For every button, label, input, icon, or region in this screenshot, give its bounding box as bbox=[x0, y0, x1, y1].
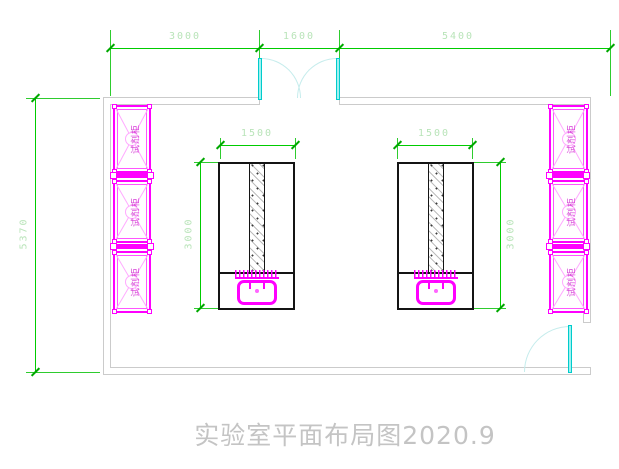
extension-line bbox=[110, 30, 111, 96]
dimension-text-5400: 5400 bbox=[428, 31, 488, 42]
reagent-cabinet: 试剂柜 bbox=[549, 251, 588, 313]
dimension-text-1500: 1500 bbox=[227, 128, 287, 139]
corner-mark bbox=[147, 250, 152, 255]
sink-tap-mark bbox=[428, 283, 430, 289]
cabinet-label: 试剂柜 bbox=[565, 124, 578, 154]
sink-tap-mark bbox=[263, 283, 265, 289]
cabinet-label: 试剂柜 bbox=[128, 124, 141, 154]
cabinet-connector-end bbox=[583, 243, 590, 250]
cabinet-label: 试剂柜 bbox=[565, 267, 578, 297]
reagent-cabinet: 试剂柜 bbox=[549, 105, 588, 173]
cabinet-label: 试剂柜 bbox=[565, 196, 578, 226]
corner-mark bbox=[584, 250, 589, 255]
corner-mark bbox=[147, 179, 152, 184]
corner-mark bbox=[584, 309, 589, 314]
cabinet-label: 试剂柜 bbox=[128, 196, 141, 226]
corner-mark bbox=[548, 250, 553, 255]
extension-line bbox=[339, 30, 340, 58]
door-jamb-right-lower bbox=[583, 367, 591, 368]
wall-top-outer-right bbox=[339, 97, 590, 98]
door-leaf-single bbox=[568, 325, 572, 373]
cabinet-connector-end bbox=[147, 172, 154, 179]
extension-line bbox=[295, 138, 296, 159]
door-arc-left bbox=[261, 58, 301, 98]
extension-line bbox=[26, 372, 100, 373]
reagent-cabinet: 试剂柜 bbox=[113, 251, 151, 313]
wall-right-outer-top bbox=[590, 97, 591, 322]
cabinet-connector-end bbox=[546, 172, 553, 179]
dimension-text-1500: 1500 bbox=[404, 128, 464, 139]
corner-mark bbox=[584, 104, 589, 109]
wall-bottom-inner bbox=[110, 367, 584, 368]
door-arc-single bbox=[524, 326, 570, 372]
corner-mark bbox=[112, 309, 117, 314]
door-leaf-left bbox=[258, 58, 262, 100]
dimension-text-5370: 5370 bbox=[19, 212, 30, 256]
extension-line bbox=[220, 138, 221, 159]
door-leaf-right bbox=[336, 58, 340, 100]
cabinet-label: 试剂柜 bbox=[128, 267, 141, 297]
corner-mark bbox=[584, 179, 589, 184]
wall-top-inner-right bbox=[339, 104, 583, 105]
sink-drainer bbox=[414, 270, 458, 279]
sink-basin bbox=[237, 280, 277, 305]
extension-line bbox=[610, 30, 611, 96]
extension-line bbox=[397, 138, 398, 159]
door-jamb-right-upper bbox=[583, 322, 591, 323]
bench-left-hatch-strip bbox=[249, 164, 265, 274]
corner-mark bbox=[548, 309, 553, 314]
cabinet-connector-end bbox=[583, 172, 590, 179]
cabinet-connector-end bbox=[147, 243, 154, 250]
sink-tap-mark bbox=[249, 283, 251, 289]
sink-drainer bbox=[235, 270, 279, 279]
cabinet-connector-end bbox=[110, 243, 117, 250]
dimension-line bbox=[397, 145, 472, 146]
bench-left bbox=[218, 162, 295, 310]
wall-left-inner bbox=[110, 104, 111, 367]
extension-line bbox=[26, 98, 100, 99]
corner-mark bbox=[112, 250, 117, 255]
dimension-text-3000: 3000 bbox=[506, 212, 517, 256]
wall-right-outer-bottom bbox=[590, 367, 591, 375]
dimension-text-3000: 3000 bbox=[155, 31, 215, 42]
extension-line bbox=[472, 138, 473, 159]
corner-mark bbox=[112, 104, 117, 109]
reagent-cabinet: 试剂柜 bbox=[113, 105, 151, 173]
drawing-title: 实验室平面布局图2020.9 bbox=[170, 416, 520, 452]
reagent-cabinet: 试剂柜 bbox=[113, 180, 151, 243]
dimension-line bbox=[35, 98, 36, 372]
wall-bottom-outer bbox=[103, 374, 591, 375]
sink-basin bbox=[416, 280, 456, 305]
bench-right bbox=[397, 162, 474, 310]
bench-right-hatch-strip bbox=[428, 164, 444, 274]
sink-tap-mark bbox=[442, 283, 444, 289]
wall-left-outer bbox=[103, 97, 104, 375]
dimension-line bbox=[220, 145, 295, 146]
sink-drain-dot bbox=[434, 289, 438, 293]
corner-mark bbox=[112, 179, 117, 184]
extension-line bbox=[259, 30, 260, 58]
corner-mark bbox=[548, 179, 553, 184]
dimension-line bbox=[200, 162, 201, 308]
cabinet-connector-end bbox=[110, 172, 117, 179]
sink-fixture-icon bbox=[414, 270, 458, 305]
floor-plan-drawing: 3000 1600 5400 5370 1500 3000 1500 bbox=[0, 0, 619, 469]
dimension-line bbox=[500, 162, 501, 308]
door-arc-right bbox=[297, 58, 337, 98]
wall-top-outer-left bbox=[103, 97, 259, 98]
corner-mark bbox=[548, 104, 553, 109]
corner-mark bbox=[147, 104, 152, 109]
dimension-text-1600: 1600 bbox=[269, 31, 329, 42]
dimension-text-3000: 3000 bbox=[184, 212, 195, 256]
reagent-cabinet: 试剂柜 bbox=[549, 180, 588, 243]
sink-fixture-icon bbox=[235, 270, 279, 305]
cabinet-connector-end bbox=[546, 243, 553, 250]
dimension-line bbox=[110, 48, 610, 49]
corner-mark bbox=[147, 309, 152, 314]
sink-drain-dot bbox=[255, 289, 259, 293]
